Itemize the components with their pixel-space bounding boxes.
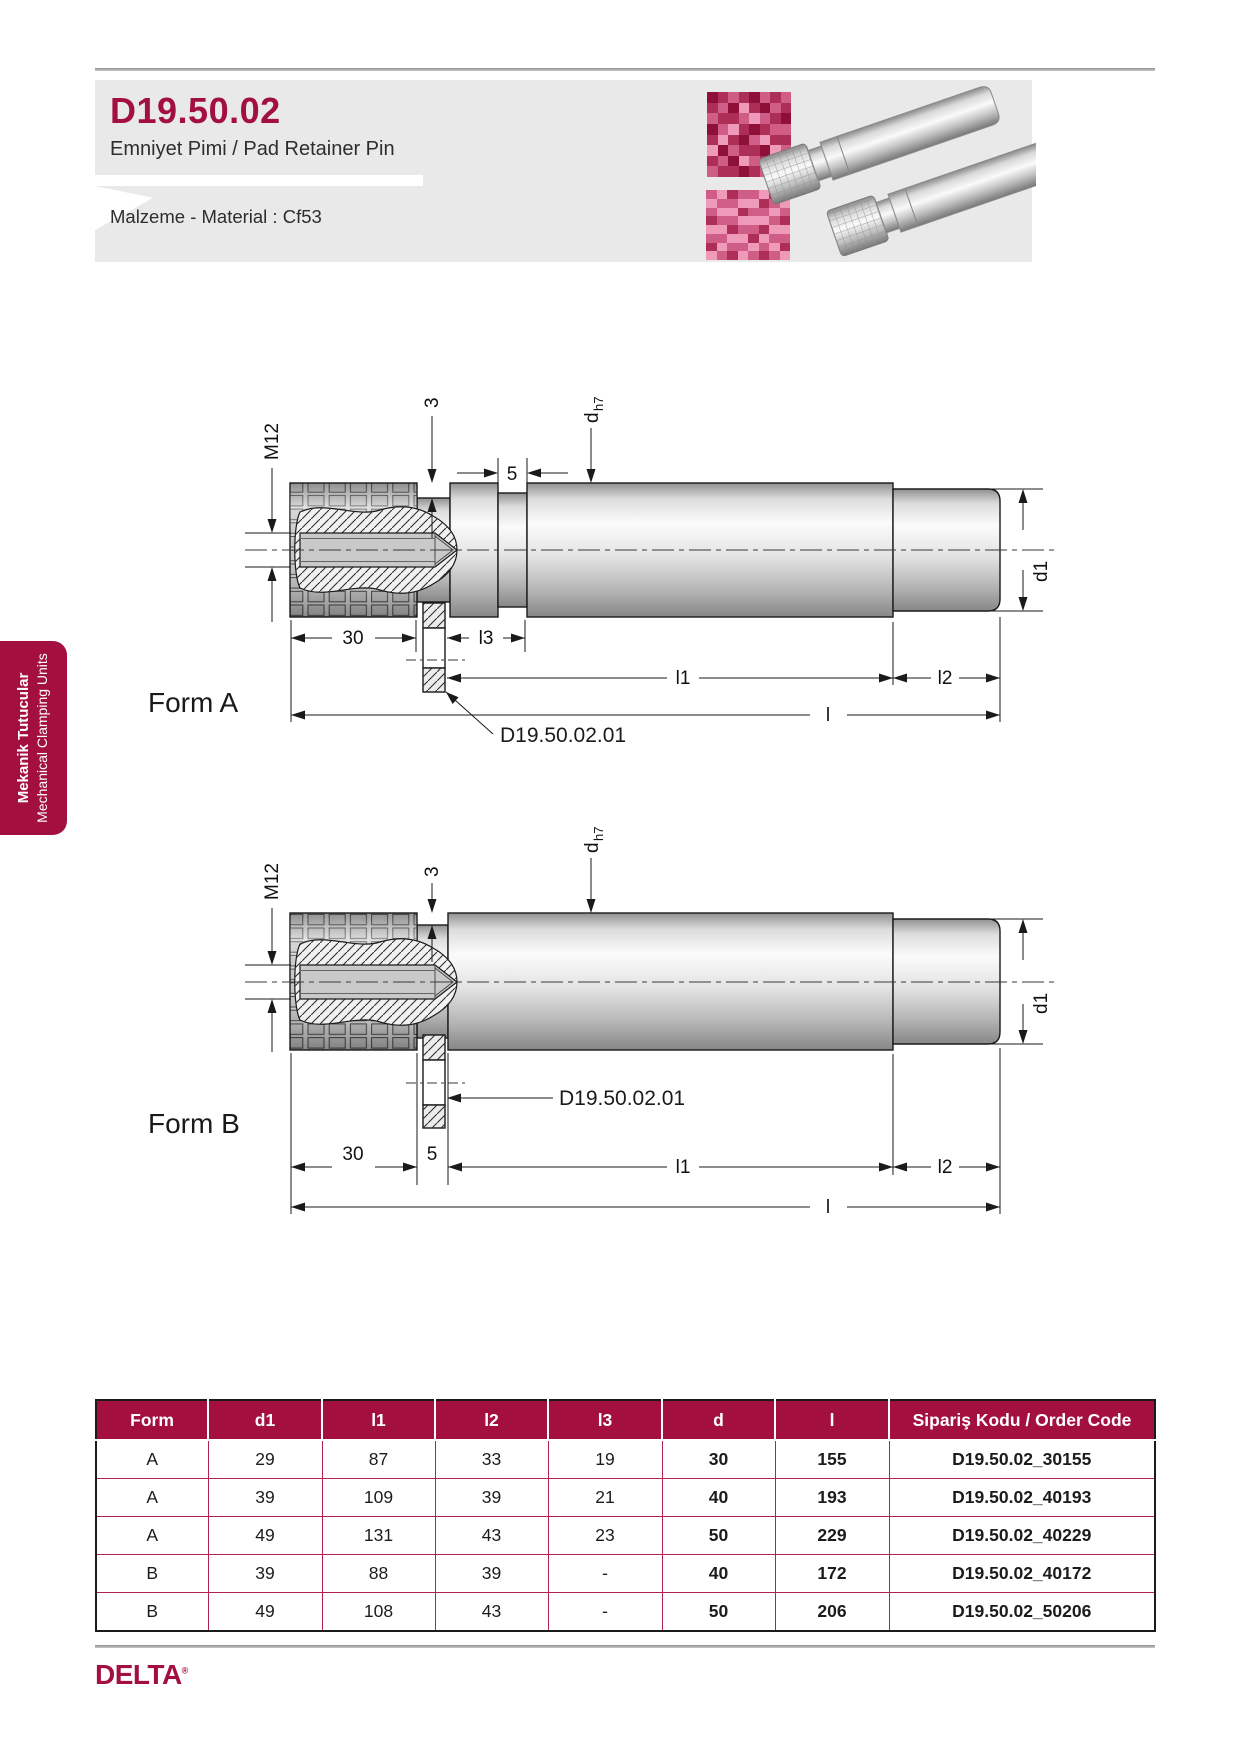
table-cell: 43	[435, 1517, 548, 1555]
top-rule	[95, 68, 1155, 71]
mosaic-cell	[707, 103, 718, 114]
mosaic-cell	[706, 243, 717, 252]
column-header: Form	[96, 1400, 208, 1440]
table-row: A2987331930155D19.50.02_30155	[96, 1440, 1155, 1479]
form-b-drawing: M12 3 d h7 d1 D19.50.02.01	[95, 790, 1160, 1245]
mosaic-cell	[727, 199, 738, 208]
bottom-rule	[95, 1645, 1155, 1648]
mosaic-cell	[728, 124, 739, 135]
dim-l3: l3	[479, 628, 494, 649]
dim-3: 3	[422, 397, 443, 408]
dim-d1: d1	[1031, 561, 1052, 582]
mosaic-cell	[717, 190, 728, 199]
mosaic-cell	[727, 225, 738, 234]
mosaic-cell	[718, 145, 729, 156]
mosaic-cell	[728, 166, 739, 177]
dim-l: l	[826, 1197, 830, 1218]
dim-l2: l2	[938, 1157, 953, 1178]
dim-3: 3	[422, 866, 443, 877]
mosaic-cell	[728, 145, 739, 156]
table-cell: 43	[435, 1593, 548, 1632]
mosaic-cell	[727, 190, 738, 199]
table-cell: A	[96, 1517, 208, 1555]
dim-5: 5	[507, 464, 518, 485]
retainer-washer	[423, 1105, 445, 1128]
sidebar-tab-text: Mekanik Tutucular Mechanical Clamping Un…	[0, 641, 67, 835]
sidebar-tab-line1: Mekanik Tutucular	[15, 673, 34, 804]
table-cell: A	[96, 1479, 208, 1517]
mosaic-cell	[728, 113, 739, 124]
dim-d: d	[582, 412, 603, 423]
mosaic-cell	[727, 251, 738, 260]
mosaic-cell	[718, 92, 729, 103]
dim-5: 5	[427, 1144, 438, 1165]
table-row: A39109392140193D19.50.02_40193	[96, 1479, 1155, 1517]
dim-l1: l1	[676, 668, 691, 689]
dim-l2: l2	[938, 668, 953, 689]
catalog-page: D19.50.02 Emniyet Pimi / Pad Retainer Pi…	[0, 0, 1241, 1755]
table-cell: -	[548, 1555, 662, 1593]
brand-logo-mark: ®	[182, 1666, 188, 1676]
dim-d-sub: h7	[591, 397, 606, 411]
mosaic-cell	[718, 113, 729, 124]
table-cell: A	[96, 1440, 208, 1479]
mosaic-cell	[707, 145, 718, 156]
table-cell: B	[96, 1593, 208, 1632]
column-header: d1	[208, 1400, 322, 1440]
table-cell: 30	[662, 1440, 775, 1479]
table-cell: 50	[662, 1517, 775, 1555]
spec-table: Formd1l1l2l3dlSipariş Kodu / Order Code …	[95, 1399, 1156, 1632]
mosaic-cell	[728, 135, 739, 146]
brand-logo-text: DELTA	[95, 1659, 182, 1690]
table-cell: D19.50.02_30155	[889, 1440, 1155, 1479]
table-cell: 40	[662, 1479, 775, 1517]
dim-l: l	[826, 705, 830, 726]
mosaic-cell	[706, 234, 717, 243]
mosaic-cell	[739, 124, 750, 135]
column-header: l1	[322, 1400, 435, 1440]
mosaic-cell	[707, 135, 718, 146]
mosaic-cell	[707, 92, 718, 103]
table-cell: 33	[435, 1440, 548, 1479]
mosaic-cell	[718, 135, 729, 146]
mosaic-cell	[738, 208, 749, 217]
table-cell: 206	[775, 1593, 889, 1632]
column-header: l2	[435, 1400, 548, 1440]
mosaic-cell	[706, 251, 717, 260]
mosaic-cell	[739, 113, 750, 124]
table-row: B398839-40172D19.50.02_40172	[96, 1555, 1155, 1593]
table-cell: 50	[662, 1593, 775, 1632]
mosaic-cell	[706, 190, 717, 199]
mosaic-cell	[738, 216, 749, 225]
mosaic-cell	[727, 234, 738, 243]
column-header: l3	[548, 1400, 662, 1440]
pin-end	[893, 919, 1000, 1044]
dim-d: d	[582, 842, 603, 853]
table-cell: 193	[775, 1479, 889, 1517]
retainer-washer	[423, 668, 445, 692]
table-cell: D19.50.02_40193	[889, 1479, 1155, 1517]
mosaic-cell	[707, 166, 718, 177]
mosaic-cell	[707, 124, 718, 135]
product-code: D19.50.02	[110, 90, 281, 132]
mosaic-cell	[706, 199, 717, 208]
table-cell: 229	[775, 1517, 889, 1555]
mosaic-cell	[738, 251, 749, 260]
mosaic-cell	[706, 216, 717, 225]
table-cell: 19	[548, 1440, 662, 1479]
mosaic-cell	[706, 225, 717, 234]
dim-m12: M12	[262, 863, 283, 900]
mosaic-cell	[718, 156, 729, 167]
table-cell: 39	[208, 1555, 322, 1593]
dim-d-sub: h7	[591, 827, 606, 841]
mosaic-cell	[739, 103, 750, 114]
mosaic-cell	[739, 135, 750, 146]
table-cell: 39	[208, 1479, 322, 1517]
spec-table-head-row: Formd1l1l2l3dlSipariş Kodu / Order Code	[96, 1400, 1155, 1440]
mosaic-cell	[727, 243, 738, 252]
header-divider	[95, 175, 423, 186]
column-header: Sipariş Kodu / Order Code	[889, 1400, 1155, 1440]
dim-d1: d1	[1031, 993, 1052, 1014]
mosaic-cell	[717, 208, 728, 217]
mosaic-cell	[739, 166, 750, 177]
table-cell: 49	[208, 1593, 322, 1632]
table-cell: -	[548, 1593, 662, 1632]
callout-form-b: D19.50.02.01	[559, 1087, 685, 1110]
dim-30: 30	[342, 628, 363, 649]
table-cell: 155	[775, 1440, 889, 1479]
table-cell: 23	[548, 1517, 662, 1555]
mosaic-cell	[739, 156, 750, 167]
mosaic-cell	[728, 103, 739, 114]
table-cell: 88	[322, 1555, 435, 1593]
mosaic-cell	[727, 216, 738, 225]
table-cell: 49	[208, 1517, 322, 1555]
table-cell: 87	[322, 1440, 435, 1479]
table-cell: 108	[322, 1593, 435, 1632]
mosaic-cell	[728, 92, 739, 103]
callout-form-a: D19.50.02.01	[500, 724, 626, 747]
dim-l1: l1	[676, 1157, 691, 1178]
mosaic-cell	[718, 103, 729, 114]
material-label: Malzeme - Material : Cf53	[110, 206, 322, 228]
table-cell: 39	[435, 1555, 548, 1593]
table-cell: 172	[775, 1555, 889, 1593]
mosaic-cell	[717, 243, 728, 252]
table-cell: 131	[322, 1517, 435, 1555]
mosaic-cell	[738, 199, 749, 208]
table-row: B4910843-50206D19.50.02_50206	[96, 1593, 1155, 1632]
column-header: l	[775, 1400, 889, 1440]
mosaic-cell	[738, 225, 749, 234]
brand-logo: DELTA®	[95, 1659, 188, 1691]
table-row: A49131432350229D19.50.02_40229	[96, 1517, 1155, 1555]
mosaic-cell	[717, 225, 728, 234]
table-cell: 109	[322, 1479, 435, 1517]
table-cell: 29	[208, 1440, 322, 1479]
mosaic-cell	[727, 208, 738, 217]
mosaic-cell	[718, 124, 729, 135]
product-photo	[750, 86, 1036, 261]
mosaic-cell	[718, 166, 729, 177]
pin-end	[893, 489, 1000, 611]
table-cell: D19.50.02_40172	[889, 1555, 1155, 1593]
table-cell: B	[96, 1555, 208, 1593]
dim-m12: M12	[262, 423, 283, 460]
table-cell: 21	[548, 1479, 662, 1517]
mosaic-cell	[706, 208, 717, 217]
mosaic-cell	[738, 243, 749, 252]
form-b-label: Form B	[148, 1108, 240, 1139]
table-cell: D19.50.02_40229	[889, 1517, 1155, 1555]
mosaic-cell	[717, 234, 728, 243]
form-a-drawing: M12 3 5 d h7 d1	[95, 330, 1160, 762]
form-a-label: Form A	[148, 687, 239, 718]
spec-table-body: A2987331930155D19.50.02_30155A3910939214…	[96, 1440, 1155, 1631]
mosaic-cell	[717, 216, 728, 225]
column-header: d	[662, 1400, 775, 1440]
product-name: Emniyet Pimi / Pad Retainer Pin	[110, 138, 395, 161]
mosaic-cell	[707, 156, 718, 167]
sidebar-tab-line2: Mechanical Clamping Units	[34, 653, 52, 823]
table-cell: 39	[435, 1479, 548, 1517]
mosaic-cell	[738, 190, 749, 199]
mosaic-cell	[717, 251, 728, 260]
table-cell: 40	[662, 1555, 775, 1593]
dim-30: 30	[342, 1144, 363, 1165]
table-cell: D19.50.02_50206	[889, 1593, 1155, 1632]
mosaic-cell	[738, 234, 749, 243]
mosaic-cell	[739, 92, 750, 103]
mosaic-cell	[728, 156, 739, 167]
mosaic-cell	[717, 199, 728, 208]
mosaic-cell	[707, 113, 718, 124]
mosaic-cell	[739, 145, 750, 156]
